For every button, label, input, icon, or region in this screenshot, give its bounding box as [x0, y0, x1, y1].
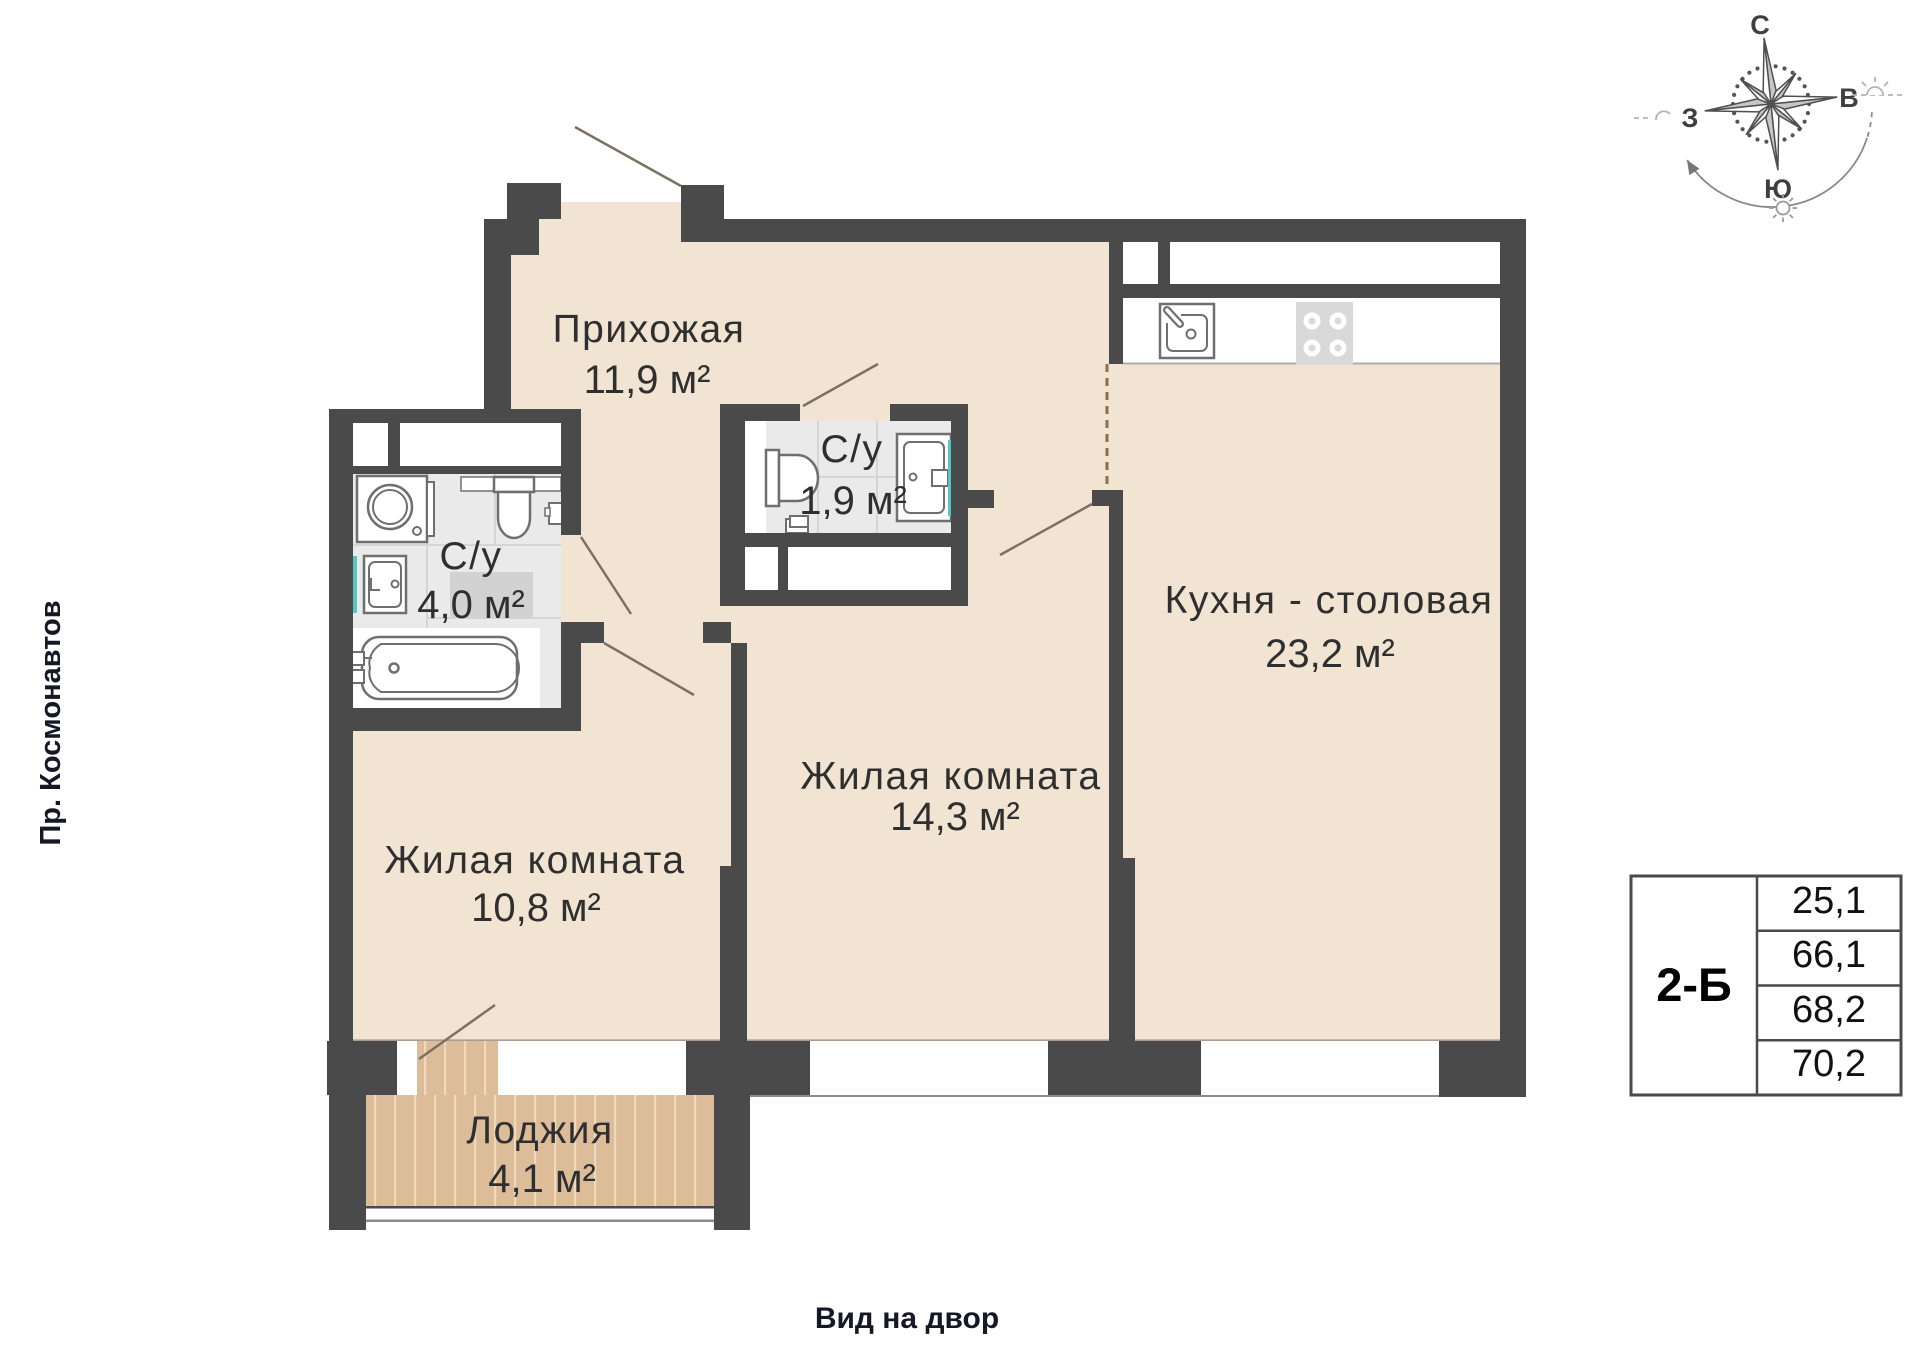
- svg-text:66,1: 66,1: [1792, 934, 1866, 976]
- svg-text:Пр. Космонавтов: Пр. Космонавтов: [35, 600, 67, 845]
- svg-text:Жилая комната: Жилая комната: [800, 755, 1101, 798]
- svg-text:В: В: [1839, 83, 1859, 113]
- svg-text:Кухня - столовая: Кухня - столовая: [1165, 579, 1494, 622]
- svg-text:Ю: Ю: [1764, 174, 1792, 204]
- svg-text:4,1 м²: 4,1 м²: [488, 1157, 596, 1201]
- svg-text:25,1: 25,1: [1792, 880, 1866, 922]
- svg-text:Прихожая: Прихожая: [553, 308, 746, 351]
- svg-text:С/у: С/у: [821, 428, 884, 471]
- svg-text:23,2 м²: 23,2 м²: [1265, 632, 1395, 676]
- svg-text:1,9 м²: 1,9 м²: [799, 479, 907, 523]
- svg-text:С/у: С/у: [440, 535, 503, 578]
- svg-text:Лоджия: Лоджия: [466, 1109, 613, 1152]
- svg-text:68,2: 68,2: [1792, 989, 1866, 1031]
- svg-text:З: З: [1682, 103, 1699, 133]
- svg-text:2-Б: 2-Б: [1656, 958, 1732, 1011]
- svg-text:Вид на двор: Вид на двор: [815, 1302, 999, 1335]
- svg-text:4,0 м²: 4,0 м²: [417, 583, 525, 627]
- svg-text:С: С: [1750, 10, 1770, 40]
- svg-text:10,8 м²: 10,8 м²: [471, 886, 601, 930]
- svg-text:70,2: 70,2: [1792, 1043, 1866, 1085]
- svg-text:Жилая комната: Жилая комната: [384, 839, 685, 882]
- svg-text:14,3 м²: 14,3 м²: [890, 795, 1020, 839]
- svg-text:11,9 м²: 11,9 м²: [584, 358, 711, 402]
